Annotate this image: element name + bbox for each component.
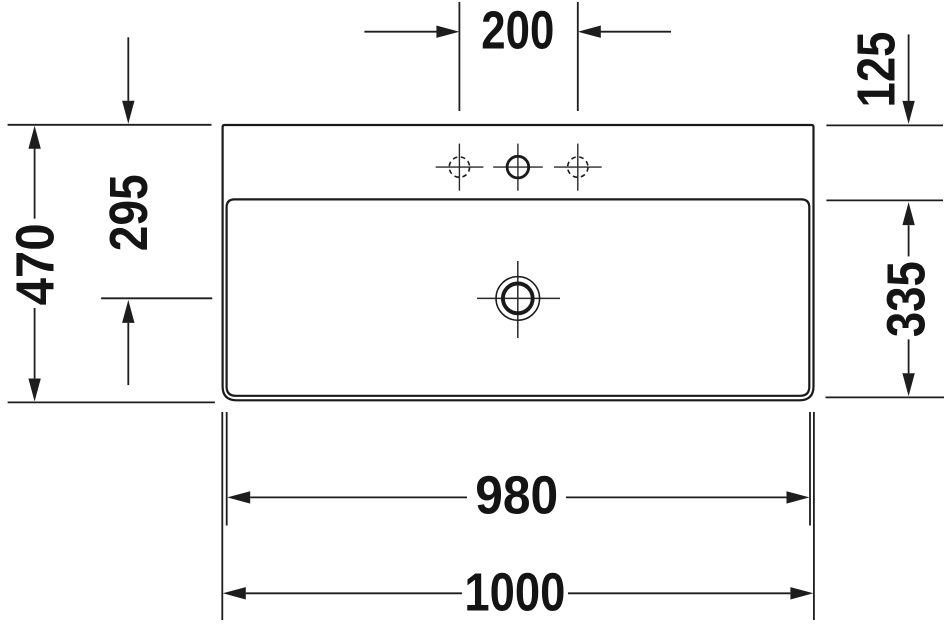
svg-text:335: 335 <box>876 261 936 337</box>
svg-text:295: 295 <box>99 174 159 251</box>
svg-text:470: 470 <box>6 223 66 305</box>
svg-text:200: 200 <box>481 0 554 60</box>
svg-text:125: 125 <box>847 32 907 108</box>
svg-text:1000: 1000 <box>464 562 565 622</box>
svg-text:980: 980 <box>475 465 558 525</box>
